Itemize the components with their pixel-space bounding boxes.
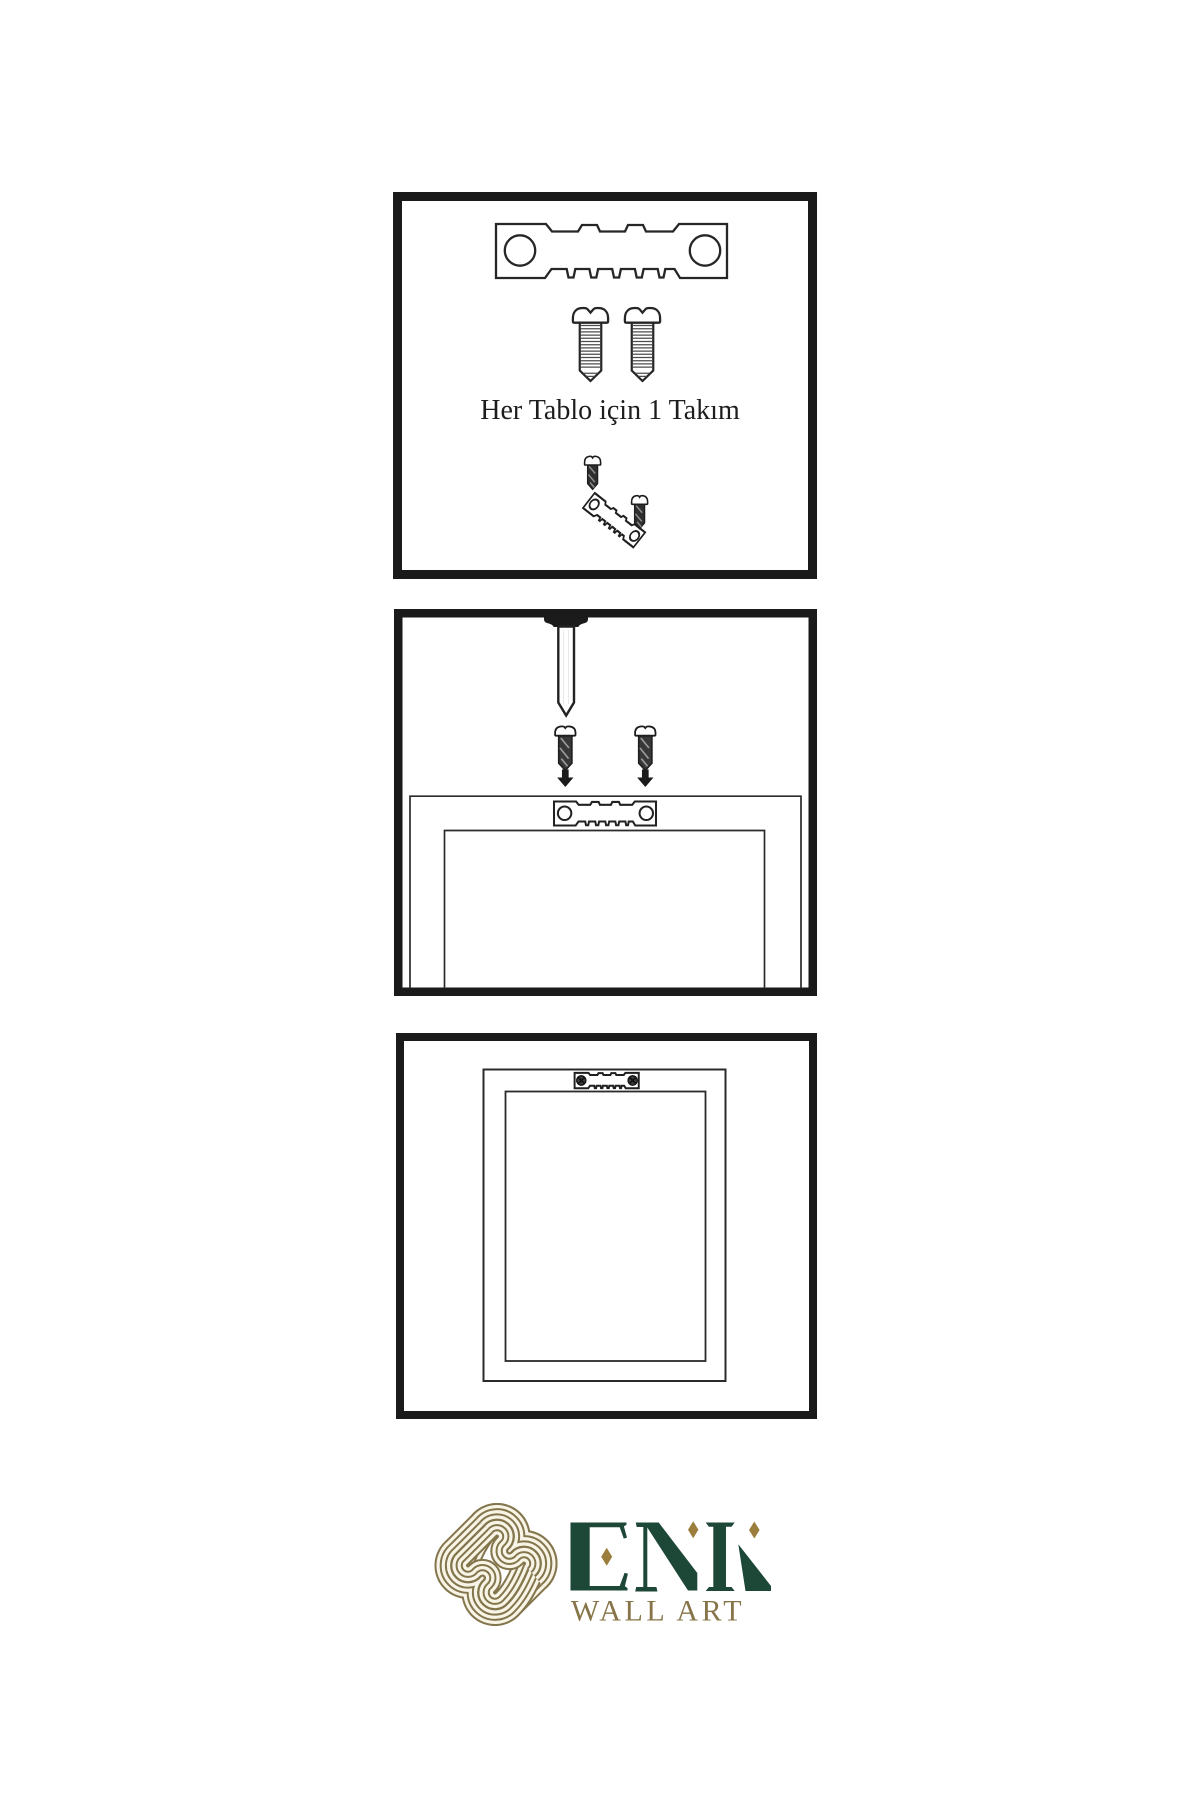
svg-text:WALL ART: WALL ART [571,1595,745,1628]
svg-text:Her Tablo için 1 Takım: Her Tablo için 1 Takım [480,395,740,426]
